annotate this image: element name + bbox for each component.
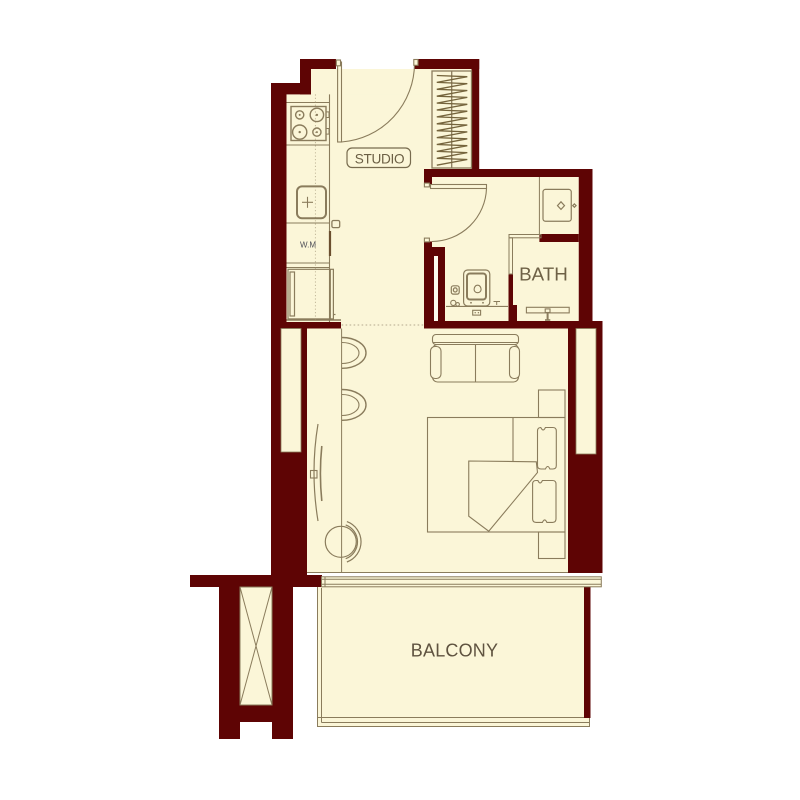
svg-text:W.M: W.M <box>300 241 316 250</box>
svg-text:BALCONY: BALCONY <box>411 641 498 661</box>
svg-text:STUDIO: STUDIO <box>355 152 405 167</box>
svg-text:BATH: BATH <box>519 264 568 285</box>
